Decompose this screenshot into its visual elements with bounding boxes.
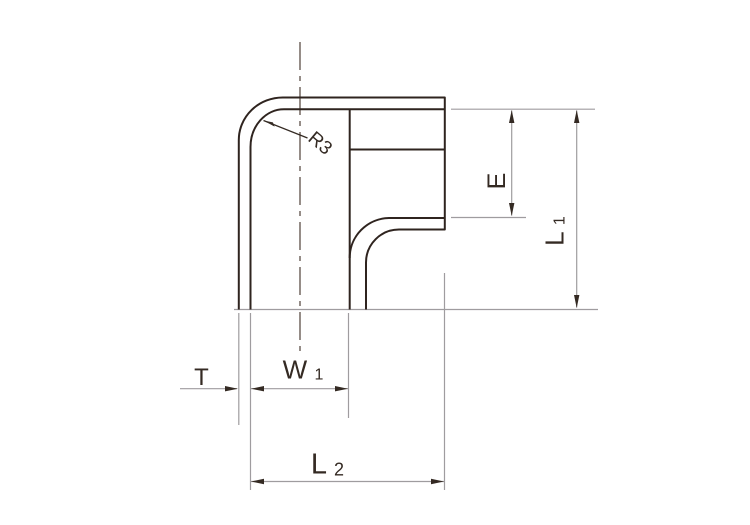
label-width-w1: W 1 [283,355,324,385]
label-l2-base: L [311,449,327,481]
label-socket-depth-e: E [483,173,511,190]
label-width-base: W [283,355,308,385]
outer-contour [239,98,445,310]
drawing-canvas: T W 1 L 2 E L 1 R3 [0,0,750,525]
elbow-outline [239,98,445,310]
arrow-L2-right [431,479,444,484]
arrow-T-right [225,386,238,391]
arrow-L1-bottom [574,295,579,308]
extension-and-dimension-lines [180,109,598,490]
inner-contour-left-top [251,109,445,309]
label-l1-base: L [540,232,570,246]
label-l1-subscript: 1 [552,216,569,225]
arrow-L1-top [574,110,579,123]
elbow-technical-drawing: T W 1 L 2 E L 1 R3 [0,0,750,525]
arrow-W1-left [251,386,264,391]
arrowheads [225,110,579,484]
arrow-L2-left [251,479,264,484]
arrow-R3-leader [264,121,275,127]
label-height-l1: L 1 [540,216,570,246]
label-wall-thickness: T [194,364,209,391]
label-width-subscript: 1 [314,367,323,384]
inner-contour-bottom-corner [350,218,445,310]
label-radius-r3: R3 [304,128,336,160]
label-l2-subscript: 2 [334,460,344,480]
label-length-l2: L 2 [311,449,344,481]
arrow-W1-right [335,386,348,391]
arrow-E-top [509,110,514,123]
arrow-E-bottom [509,203,514,216]
